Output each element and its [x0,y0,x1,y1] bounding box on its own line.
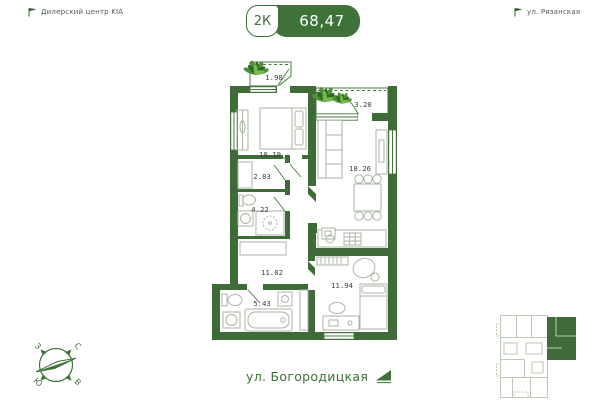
landmark-left: Дилерский центр KIA [28,7,123,17]
bedroom-furniture [237,108,306,150]
bathroom-furniture [222,292,292,331]
floor-plan: 1.98 3.20 10.19 18.26 2.83 4.22 11.02 5.… [190,56,410,348]
landmark-right-label: ул. Рязанская [527,8,580,16]
flag-icon [28,7,37,17]
area-label-kitchen-living: 18.26 [349,164,371,173]
area-label-wc: 4.22 [251,205,269,214]
kitchen-furniture [318,120,387,247]
street-name: ул. Богородицкая [246,369,368,384]
rooms-badge: 2К [246,5,279,37]
area-label-bedroom: 10.19 [259,150,281,159]
street-flag-icon [375,369,393,384]
mini-building-plan[interactable] [496,306,598,398]
floorplan-page: Дилерский центр KIA ул. Рязанская 2К 68,… [0,0,605,403]
mini-plan-outline [497,316,548,398]
area-label-hallway: 11.02 [261,268,283,277]
area-label-bathroom: 5.43 [253,299,271,308]
area-label-balcony-right: 3.20 [354,100,372,109]
compass-west: З [33,341,43,351]
area-label-closet: 2.83 [253,172,271,181]
landmark-left-label: Дилерский центр KIA [41,8,123,16]
landmark-right: ул. Рязанская [514,7,580,17]
compass: З С Ю В [24,334,88,398]
compass-east: В [73,377,83,387]
area-label-balcony-top: 1.98 [265,73,283,82]
hall-wardrobe [240,242,286,255]
flag-icon [514,7,523,17]
area-badge: 68,47 [272,5,360,37]
mini-plan-selected-section[interactable] [547,317,576,360]
plant-icon [332,92,353,105]
compass-north: С [73,341,84,352]
area-label-bedroom2: 11.94 [331,281,354,290]
street-label: ул. Богородицкая [246,369,393,384]
